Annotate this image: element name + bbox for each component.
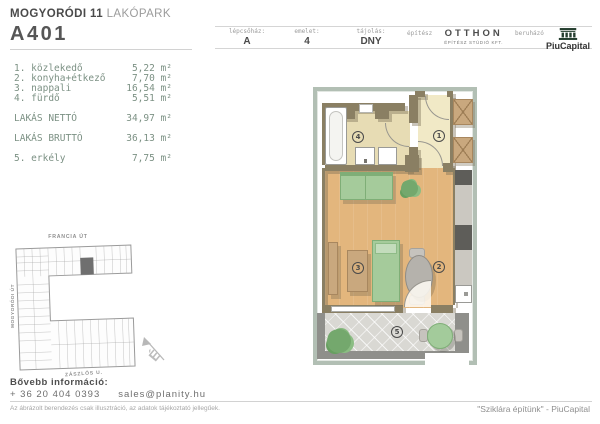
cabinet-handle	[464, 292, 468, 296]
room-name: 5. erkély	[14, 154, 65, 164]
bathtub-basin	[329, 111, 343, 161]
wall	[405, 155, 419, 172]
architect-name: OTTHON	[432, 28, 515, 39]
room-list: 1. közlekedő 5,22 m² 2. konyha+étkező 7,…	[14, 64, 172, 164]
flyer-page: MOGYORÓDI 11 LAKÓPARK A401 lépcsőház: A …	[0, 0, 600, 424]
bed-pillow	[375, 243, 397, 254]
street-label-top: FRANCIA ÚT	[48, 233, 88, 240]
room-label-bath: 4	[352, 131, 364, 143]
phone-number: + 36 20 404 0393	[10, 389, 100, 400]
header-info-table: lépcsőház: A emelet: 4 tájolás: DNY épít…	[215, 26, 592, 49]
developer-slogan: "Sziklára építünk" - PiuCapital	[477, 404, 590, 414]
sofa-cushion-line	[365, 176, 366, 199]
total-gross-row: LAKÁS BRUTTÓ 36,13 m²	[14, 134, 172, 144]
balcony-table	[427, 323, 453, 349]
wardrobe-closet	[453, 99, 473, 125]
total-net-row: LAKÁS NETTÓ 34,97 m²	[14, 114, 172, 124]
kitchen-fridge	[455, 170, 472, 185]
balcony-plant	[327, 329, 351, 353]
window	[331, 306, 395, 312]
wardrobe-closet	[453, 137, 473, 163]
room-area: 5,51 m²	[132, 94, 172, 104]
room-name: 4. fürdő	[14, 94, 60, 104]
kitchen-counter	[455, 185, 472, 225]
architect-label: építész	[407, 30, 432, 37]
field-orientation-value: DNY	[360, 36, 381, 47]
sofa	[340, 172, 393, 200]
wall	[375, 111, 389, 119]
wall	[409, 95, 418, 123]
wall	[431, 305, 453, 313]
developer-block: beruházó PiuCapital	[515, 27, 592, 48]
developer-label: beruházó	[515, 30, 544, 37]
sink-faucet	[364, 159, 367, 163]
room-label-living: 3	[352, 262, 364, 274]
total-area: 34,97 m²	[126, 114, 172, 124]
project-title-bold: MOGYORÓDI 11	[10, 8, 103, 20]
side-shelf	[328, 242, 338, 295]
field-floor-label: emelet:	[294, 28, 319, 35]
email-link[interactable]: sales@planity.hu	[118, 389, 206, 400]
site-plan: FRANCIA ÚT MOGYORÓDI ÚT ZÁSZLÓS U.	[6, 228, 202, 380]
contact-row: + 36 20 404 0393 sales@planity.hu	[10, 389, 206, 400]
field-orientation-label: tájolás:	[357, 28, 386, 35]
site-building	[16, 245, 135, 370]
unit-id: A401	[10, 23, 68, 46]
header-divider-left	[10, 49, 192, 50]
architect-block: építész OTTHON ÉPÍTÉSZ STÚDIÓ KFT.	[407, 27, 515, 48]
total-label: LAKÁS NETTÓ	[14, 114, 77, 124]
field-floor: emelet: 4	[279, 27, 335, 48]
kitchen-counter	[455, 250, 472, 285]
bathtub	[325, 107, 347, 165]
floor-plan: 1 2 3 4 5	[313, 87, 477, 365]
disclaimer-text: Az ábrázolt berendezés csak illusztráció…	[10, 405, 220, 412]
balcony-chair	[454, 329, 463, 342]
railing-gap	[425, 353, 469, 366]
field-orientation: tájolás: DNY	[335, 27, 407, 48]
architect-logo: OTTHON ÉPÍTÉSZ STÚDIÓ KFT.	[432, 28, 515, 45]
room-label-kitchen: 2	[433, 261, 445, 273]
room-label-hall: 1	[433, 130, 445, 142]
more-info-label: Bővebb információ:	[10, 377, 108, 388]
toilet	[378, 147, 397, 165]
footer-divider	[10, 401, 592, 402]
balcony-row: 5. erkély 7,75 m²	[14, 154, 172, 164]
field-floor-value: 4	[304, 36, 310, 47]
total-area: 36,13 m²	[126, 134, 172, 144]
room-label-balcony: 5	[391, 326, 403, 338]
kitchen-cabinet	[455, 285, 472, 303]
project-title-light: LAKÓPARK	[107, 8, 171, 20]
developer-name: PiuCapital	[546, 41, 590, 51]
sink	[355, 147, 375, 165]
field-staircase-label: lépcsőház:	[229, 28, 265, 35]
room-area: 7,75 m²	[132, 154, 172, 164]
architect-subtitle: ÉPÍTÉSZ STÚDIÓ KFT.	[432, 40, 515, 45]
field-staircase: lépcsőház: A	[215, 27, 279, 48]
field-staircase-value: A	[243, 36, 250, 47]
wall	[322, 168, 325, 313]
wall-niche	[359, 104, 373, 113]
total-label: LAKÁS BRUTTÓ	[14, 134, 83, 144]
project-title: MOGYORÓDI 11 LAKÓPARK	[10, 8, 171, 20]
bed	[372, 240, 400, 302]
wall	[415, 91, 425, 97]
north-compass: É	[142, 337, 164, 364]
room-row-4: 4. fürdő 5,51 m²	[14, 94, 172, 104]
potted-plant	[401, 180, 418, 197]
highlighted-unit	[80, 257, 94, 274]
street-label-left: MOGYORÓDI ÚT	[8, 284, 16, 328]
wall	[325, 165, 411, 171]
kitchen-stove	[455, 225, 472, 250]
piucapital-building-icon	[557, 28, 579, 40]
developer-logo: PiuCapital	[544, 28, 592, 51]
wall	[443, 163, 453, 172]
